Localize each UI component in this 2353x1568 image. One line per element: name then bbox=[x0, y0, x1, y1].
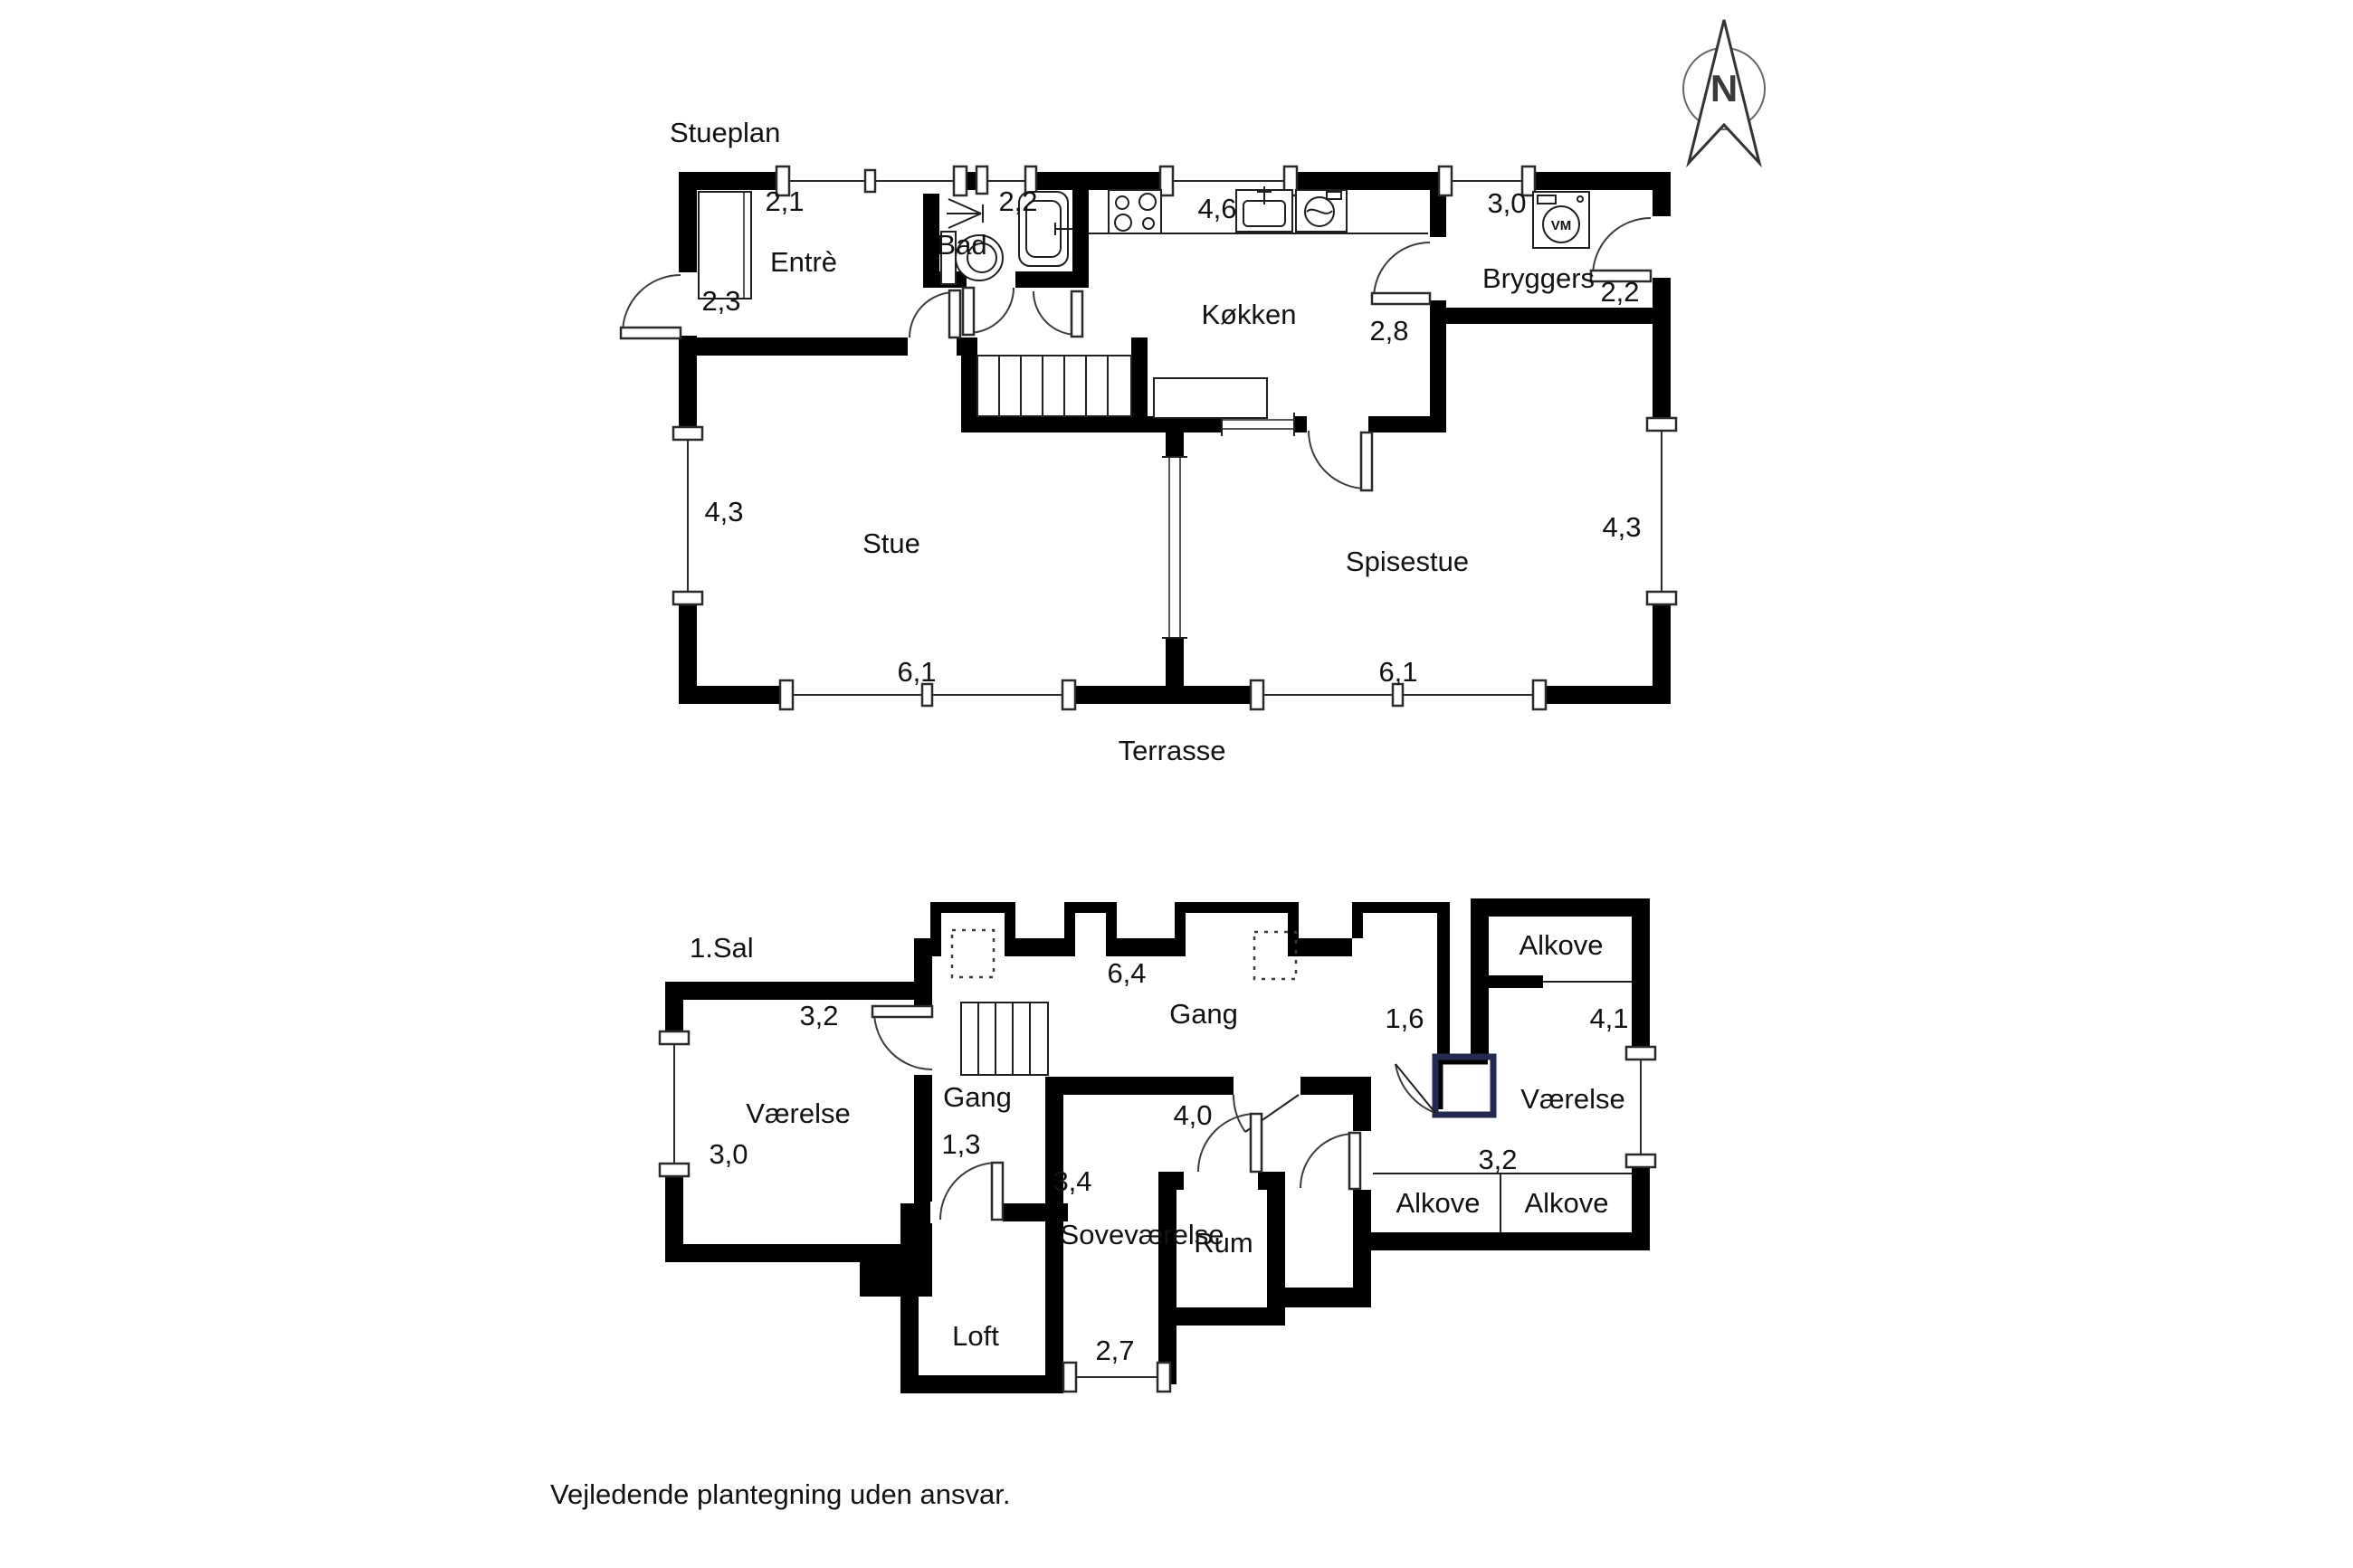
dim-vaerelse-left-depth: 3,0 bbox=[709, 1138, 748, 1170]
dim-spisestue-depth: 4,3 bbox=[1602, 511, 1641, 543]
dim-bryggers-width: 3,0 bbox=[1487, 187, 1526, 219]
door-sovevaerelse-gang bbox=[1234, 1075, 1300, 1132]
dim-vaerelse-left-width: 3,2 bbox=[799, 1000, 838, 1031]
dim-sovevaerelse-width: 4,0 bbox=[1173, 1099, 1212, 1131]
dim-vaerelse-right-depth: 4,1 bbox=[1589, 1003, 1628, 1034]
ground-floor: VM Stueplan 2,1 2,2 4,6 3,0 Entrè Bad Kø… bbox=[621, 117, 1676, 766]
window-stue-left bbox=[673, 427, 702, 604]
compass-north: N bbox=[1683, 20, 1765, 163]
door-hall-kokken bbox=[1034, 291, 1082, 337]
room-label-gang-lower: Gang bbox=[943, 1081, 1012, 1113]
room-label-alkove-bottom-left: Alkove bbox=[1396, 1187, 1480, 1219]
window-vaerelse-right bbox=[1626, 1047, 1655, 1167]
washing-machine-fixture: VM bbox=[1533, 192, 1589, 248]
dim-sovevaerelse-depth: 3,4 bbox=[1053, 1165, 1091, 1197]
room-label-entre: Entrè bbox=[770, 246, 837, 278]
chimney bbox=[1435, 1057, 1493, 1115]
stairs-first bbox=[961, 1003, 1048, 1075]
first-floor: 1.Sal 3,2 Værelse 3,0 Gang 1,3 6,4 Gang … bbox=[660, 898, 1655, 1393]
dim-gang-lower-width: 1,3 bbox=[941, 1128, 980, 1160]
dim-gang-upper-width: 6,4 bbox=[1107, 957, 1146, 989]
room-label-stue: Stue bbox=[862, 527, 920, 559]
door-gang-vaerelse-right bbox=[1396, 1064, 1435, 1113]
room-label-spisestue: Spisestue bbox=[1346, 546, 1469, 577]
disclaimer-text: Vejledende plantegning uden ansvar. bbox=[550, 1478, 1011, 1510]
room-label-vaerelse-right: Værelse bbox=[1520, 1083, 1624, 1115]
wardrobe-fixture bbox=[699, 192, 751, 299]
dim-stue-width: 6,1 bbox=[897, 656, 936, 688]
door-vaerelse-left bbox=[872, 1006, 934, 1075]
room-label-vaerelse-left: Værelse bbox=[746, 1098, 850, 1129]
dim-sovevaerelse-window: 2,7 bbox=[1095, 1335, 1134, 1366]
door-entrance bbox=[621, 272, 699, 338]
window-sovevaerelse bbox=[1063, 1363, 1170, 1392]
dim-stue-depth: 4,3 bbox=[704, 496, 743, 527]
washing-machine-label: VM bbox=[1551, 218, 1572, 233]
dim-spisestue-width: 6,1 bbox=[1378, 656, 1417, 688]
kitchen-island bbox=[1154, 378, 1267, 418]
opening-stue-spisestue bbox=[1162, 457, 1187, 638]
door-hall-stue bbox=[908, 290, 960, 357]
room-label-bryggers: Bryggers bbox=[1482, 262, 1595, 294]
room-label-bad: Bad bbox=[937, 229, 986, 261]
room-label-loft: Loft bbox=[952, 1320, 999, 1352]
room-label-alkove-top: Alkove bbox=[1519, 929, 1603, 961]
dim-gang-upper-depth: 1,6 bbox=[1385, 1003, 1424, 1034]
stairs-ground bbox=[977, 356, 1131, 416]
first-floor-title: 1.Sal bbox=[690, 932, 754, 964]
room-label-rum: Rum bbox=[1194, 1227, 1253, 1259]
dim-bad-width: 2,2 bbox=[998, 185, 1037, 217]
floorplan-page: VM Stueplan 2,1 2,2 4,6 3,0 Entrè Bad Kø… bbox=[0, 0, 2353, 1568]
dim-kokken-width: 4,6 bbox=[1197, 193, 1236, 224]
door-kokken-spisestue bbox=[1307, 414, 1372, 490]
room-label-gang-upper: Gang bbox=[1169, 998, 1238, 1030]
skylight-dashed-1 bbox=[952, 930, 994, 977]
compass-letter: N bbox=[1710, 67, 1738, 109]
room-label-alkove-bottom-right: Alkove bbox=[1524, 1187, 1608, 1219]
door-loft bbox=[930, 1163, 1003, 1223]
dim-vaerelse-right-width: 3,2 bbox=[1478, 1144, 1517, 1175]
dim-kokken-depth: 2,8 bbox=[1369, 315, 1408, 347]
dishwasher-fixture bbox=[1296, 190, 1347, 232]
room-label-kokken: Køkken bbox=[1201, 299, 1296, 330]
window-vaerelse-left bbox=[660, 1031, 689, 1176]
outdoor-label-terrasse: Terrasse bbox=[1119, 735, 1226, 766]
dim-entre-width: 2,1 bbox=[765, 185, 804, 217]
door-kokken-bryggers bbox=[1372, 237, 1448, 304]
window-spisestue-right bbox=[1647, 418, 1676, 604]
dim-bryggers-depth: 2,2 bbox=[1600, 276, 1639, 308]
door-bryggers-exterior bbox=[1591, 216, 1672, 281]
window-top-entre bbox=[776, 166, 967, 195]
dim-entre-depth: 2,3 bbox=[701, 285, 740, 317]
floorplan-drawing: VM Stueplan 2,1 2,2 4,6 3,0 Entrè Bad Kø… bbox=[0, 0, 2353, 1568]
shower-icon bbox=[947, 199, 983, 228]
ground-floor-title: Stueplan bbox=[670, 117, 780, 148]
sink-fixture bbox=[1236, 186, 1292, 232]
door-sovevaerelse-east bbox=[1300, 1131, 1373, 1190]
stove-fixture bbox=[1109, 190, 1161, 233]
